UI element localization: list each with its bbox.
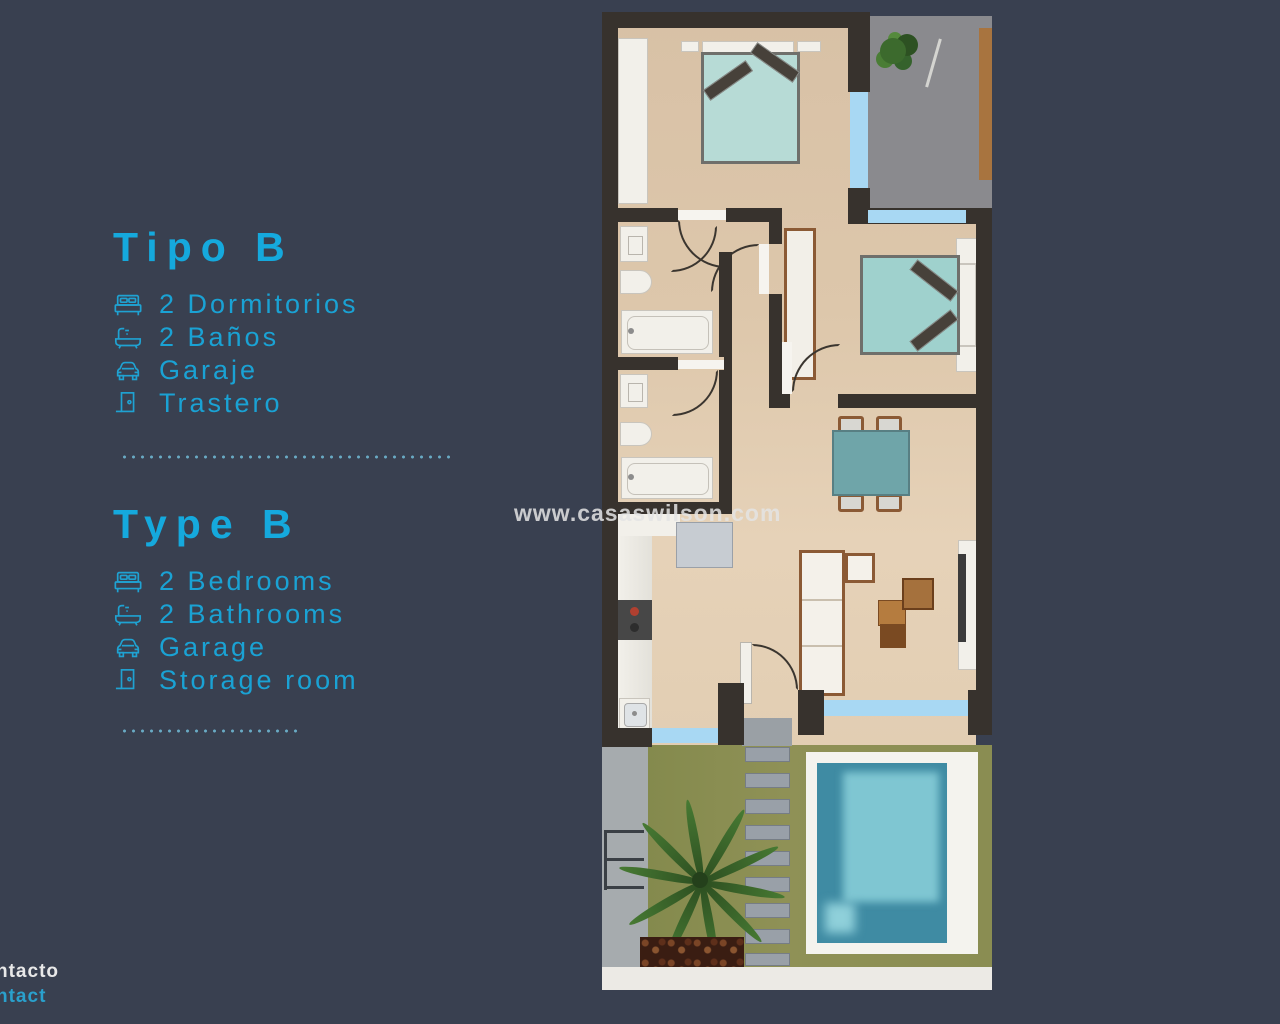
list-item-bedrooms: 2 Bedrooms (113, 565, 359, 598)
list-item-garage: Garage (113, 631, 359, 664)
feature-label: Garaje (159, 355, 258, 386)
bathtub-drain (628, 328, 634, 334)
planter-box (640, 937, 744, 967)
feature-list-en: 2 Bedrooms 2 Bathrooms Garage Storage ro… (113, 565, 359, 697)
wall-bathrooms-mid-right (724, 357, 732, 370)
divider-dotted-top (120, 455, 452, 459)
list-item-garaje: Garaje (113, 354, 359, 387)
feature-label: 2 Bedrooms (159, 566, 335, 597)
sofa-cushion-line (802, 645, 842, 647)
tv-screen (958, 554, 966, 642)
palm-trunk (692, 872, 708, 888)
bedroom2-headboard (958, 264, 976, 346)
wall-hall-lower (769, 294, 782, 394)
terrace-wood-edge (979, 28, 992, 180)
stepping-stone (745, 903, 790, 918)
feature-list-es: 2 Dormitorios 2 Baños Garaje Trastero (113, 288, 359, 420)
bathtub-inner (627, 316, 709, 350)
wall-bottom-door-left (718, 683, 744, 745)
door-step (742, 718, 792, 746)
sink-drain (632, 711, 637, 716)
title-en: Type B (113, 501, 359, 548)
divider-dotted-bottom (120, 729, 302, 733)
pool-shallow-area (843, 772, 939, 902)
wall-bedroom1-bottom-left (618, 208, 678, 222)
wall-bathrooms-mid-left (618, 357, 678, 370)
kitchen-fridge (676, 522, 733, 568)
sofa-corner-seat (845, 553, 875, 583)
pool (817, 763, 947, 943)
wall-left (602, 12, 618, 745)
bath-icon (113, 324, 147, 352)
bathroom2-door-leaf (678, 360, 724, 369)
list-item-trastero: Trastero (113, 387, 359, 420)
sink-basin (628, 383, 643, 402)
terrace-bush (880, 38, 906, 64)
panel-type-b: Type B 2 Bedrooms 2 Bathrooms Garage Sto… (113, 501, 359, 697)
railing-bar (604, 858, 644, 861)
bath-icon (113, 601, 147, 629)
window-kitchen (652, 728, 718, 743)
side-table (902, 578, 934, 610)
list-item-banos: 2 Baños (113, 321, 359, 354)
armchair-seat (880, 624, 906, 648)
car-icon (113, 634, 147, 662)
bedroom2-door-leaf (782, 342, 792, 394)
feature-label: Garage (159, 632, 267, 663)
bottom-curb (602, 967, 992, 990)
panel-tipo-b: Tipo B 2 Dormitorios 2 Baños Garaje Tras… (113, 224, 359, 420)
hall-door-leaf (759, 244, 769, 294)
stepping-stone (745, 953, 790, 966)
feature-label: 2 Bathrooms (159, 599, 345, 630)
window-bedroom2-top (868, 210, 966, 223)
stepping-stone (745, 799, 790, 814)
window-bedroom1-side (850, 92, 868, 188)
bedroom1-closet (618, 38, 648, 204)
stove-burner (630, 607, 639, 616)
feature-label: Storage room (159, 665, 359, 696)
kitchen-stove (618, 600, 652, 640)
bedroom1-door-leaf (678, 210, 726, 220)
footer-contacto: ntacto (0, 961, 59, 983)
wall-bottom-left (602, 728, 652, 747)
stepping-stone (745, 773, 790, 788)
car-icon (113, 357, 147, 385)
feature-label: 2 Baños (159, 322, 279, 353)
dining-table (832, 430, 910, 496)
feature-label: Trastero (159, 388, 283, 419)
wall-bedroom1-bottom-right (726, 208, 770, 222)
title-es: Tipo B (113, 224, 359, 271)
wall-bathroom2-right (719, 370, 732, 502)
feature-label: 2 Dormitorios (159, 289, 359, 320)
sofa-cushion-line (802, 599, 842, 601)
footer-contact: ntact (0, 986, 46, 1008)
wall-terrace-divider-top (848, 12, 870, 92)
window-living-room (824, 700, 968, 716)
railing-bar (604, 886, 644, 889)
wall-right (976, 208, 992, 724)
wall-bottom-door-right (798, 690, 824, 735)
wall-hall-upper (769, 208, 782, 244)
bed-icon (113, 291, 147, 319)
wall-bottom-right (968, 690, 992, 735)
door-icon (113, 667, 147, 695)
dining-chair (838, 494, 864, 512)
bathroom2-toilet (620, 422, 652, 446)
list-item-bathrooms: 2 Bathrooms (113, 598, 359, 631)
railing-post (604, 830, 607, 890)
wall-bedroom2-bottom-right (838, 394, 992, 408)
list-item-storage-room: Storage room (113, 664, 359, 697)
watermark-url: www.casaswilson.com (514, 500, 781, 527)
bathroom2-bathtub (621, 457, 713, 499)
bathroom1-bathtub (621, 310, 713, 354)
railing-bar (604, 830, 644, 833)
list-item-dormitorios: 2 Dormitorios (113, 288, 359, 321)
kitchen-sink (619, 698, 650, 730)
wall-bedroom2-bottom-left (769, 394, 790, 408)
stove-burner (630, 623, 639, 632)
bathtub-drain (628, 474, 634, 480)
stepping-stone (745, 825, 790, 840)
sofa (799, 550, 845, 696)
side-path (602, 745, 648, 967)
bed-icon (113, 568, 147, 596)
bathroom1-sink (620, 226, 648, 262)
bedroom1-nightstand (797, 41, 821, 52)
stepping-stone (745, 747, 790, 762)
bathtub-inner (627, 463, 709, 495)
bathroom1-toilet (620, 270, 652, 294)
door-icon (113, 390, 147, 418)
bedroom1-nightstand (681, 41, 699, 52)
dining-chair (876, 494, 902, 512)
pool-steps (825, 903, 855, 933)
wall-bathroom1-right (719, 252, 732, 357)
brochure-page: { "page": { "watermark": "www.casaswilso… (0, 0, 1280, 1024)
sink-basin (628, 236, 643, 255)
bathroom2-sink (620, 374, 648, 408)
wall-top (602, 12, 866, 28)
